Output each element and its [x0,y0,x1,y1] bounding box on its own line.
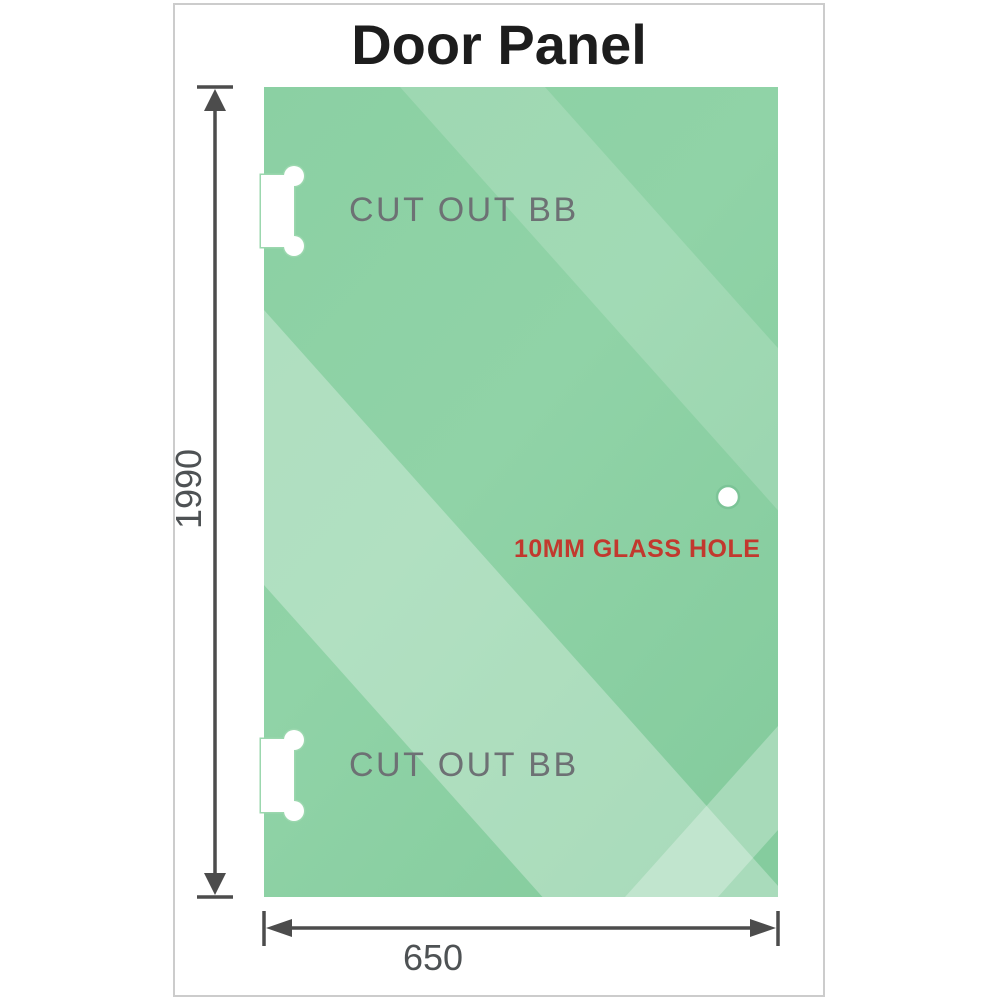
width-dim-arrow-left-icon [266,919,292,937]
height-dim-arrow-down-icon [204,873,226,895]
width-dim-arrow-right-icon [750,919,776,937]
width-dimension [264,911,778,946]
height-dim-arrow-up-icon [204,89,226,111]
cutout-label-bottom: CUT OUT BB [349,748,579,782]
cutout-label-top: CUT OUT BB [349,193,579,227]
diagram-canvas [0,0,1000,1000]
width-dimension-value: 650 [393,940,473,976]
page-title: Door Panel [173,17,825,73]
glass-hole [717,486,739,508]
door-panel-diagram: Door Panel CUT OUT BB CUT OUT BB 10MM GL… [0,0,1000,1000]
height-dimension-value: 1990 [171,429,207,549]
glass-hole-label: 10MM GLASS HOLE [514,537,760,562]
